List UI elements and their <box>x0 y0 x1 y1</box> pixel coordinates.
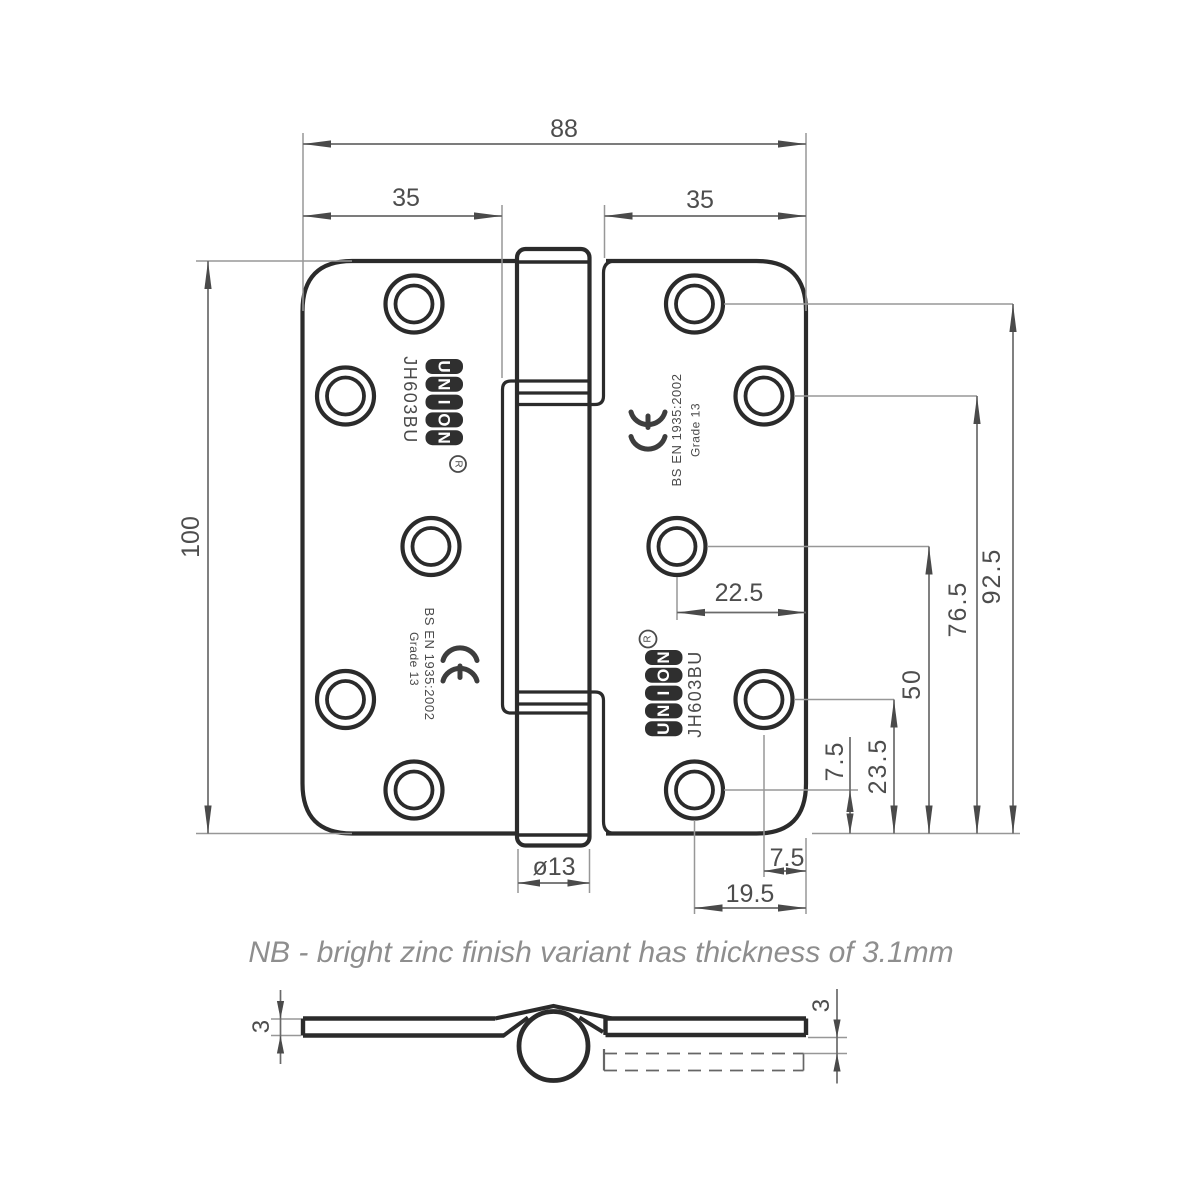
svg-text:JH603BU: JH603BU <box>685 650 705 738</box>
svg-text:19.5: 19.5 <box>726 880 775 908</box>
svg-text:R: R <box>643 635 654 642</box>
svg-text:7.5: 7.5 <box>770 844 805 872</box>
svg-text:U: U <box>654 723 673 735</box>
svg-text:N: N <box>654 705 673 717</box>
svg-text:I: I <box>654 691 673 696</box>
svg-text:35: 35 <box>686 186 714 214</box>
svg-text:O: O <box>435 413 454 426</box>
svg-text:50: 50 <box>898 668 926 700</box>
svg-text:N: N <box>435 378 454 390</box>
svg-text:Grade 13: Grade 13 <box>689 403 703 457</box>
svg-text:R: R <box>453 460 464 467</box>
svg-text:JH603BU: JH603BU <box>400 356 420 444</box>
svg-text:U: U <box>435 360 454 372</box>
svg-text:100: 100 <box>177 516 205 558</box>
svg-text:92.5: 92.5 <box>978 548 1006 605</box>
svg-text:22.5: 22.5 <box>715 579 764 607</box>
svg-text:35: 35 <box>392 184 420 212</box>
svg-text:I: I <box>435 400 454 405</box>
svg-text:BS EN 1935:2002: BS EN 1935:2002 <box>422 607 437 720</box>
svg-text:76.5: 76.5 <box>944 581 972 638</box>
svg-text:N: N <box>654 651 673 663</box>
svg-text:88: 88 <box>550 115 578 143</box>
svg-text:N: N <box>435 432 454 444</box>
svg-text:3: 3 <box>248 1020 275 1033</box>
svg-text:O: O <box>654 669 673 682</box>
svg-text:ø13: ø13 <box>532 853 575 881</box>
svg-text:7.5: 7.5 <box>821 741 849 782</box>
svg-text:3: 3 <box>808 999 835 1012</box>
svg-text:BS EN 1935:2002: BS EN 1935:2002 <box>669 373 684 486</box>
svg-text:NB - bright zinc finish varian: NB - bright zinc finish variant has thic… <box>248 936 953 969</box>
svg-text:Grade 13: Grade 13 <box>407 632 421 686</box>
svg-text:23.5: 23.5 <box>864 738 892 795</box>
